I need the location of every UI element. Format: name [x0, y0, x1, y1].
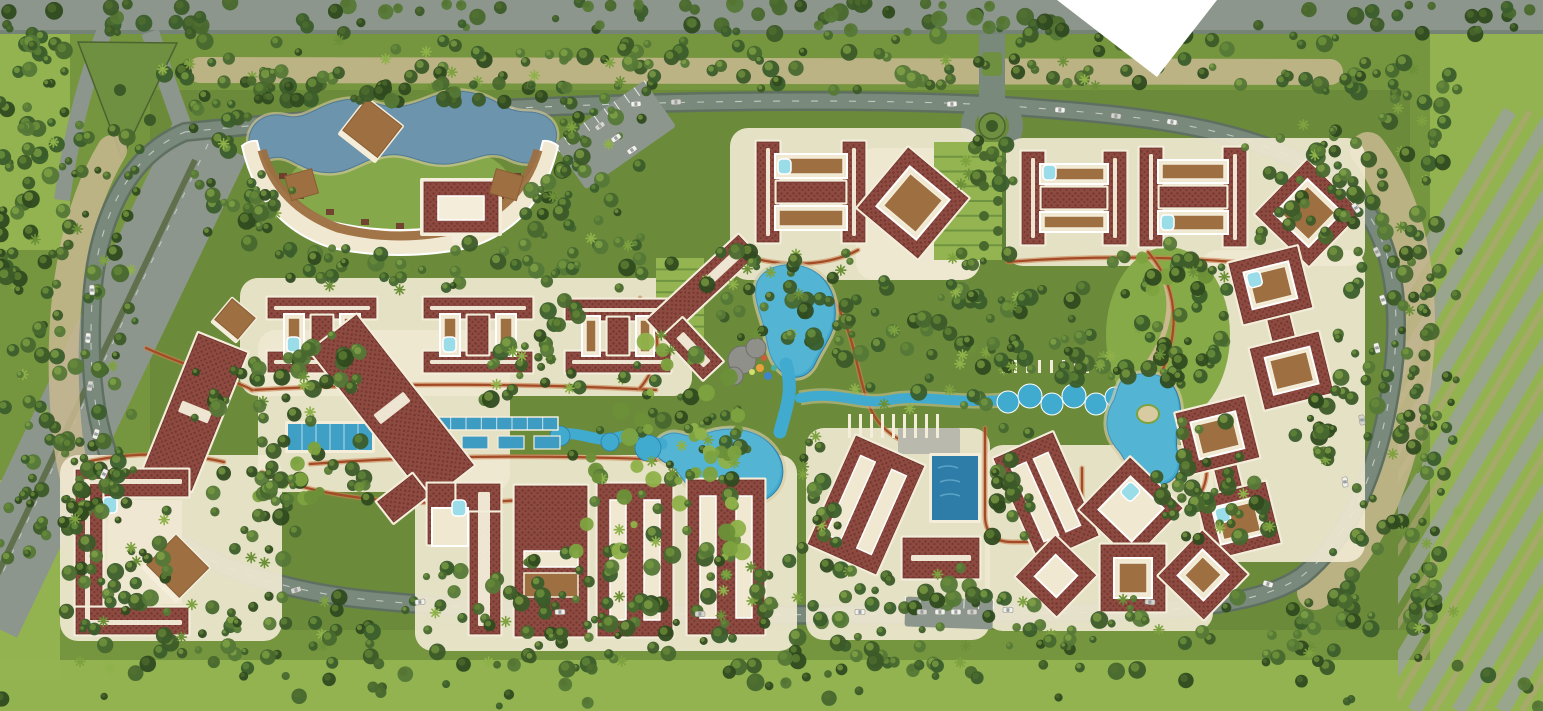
tree-highlight: [80, 577, 87, 584]
tree-highlight: [321, 376, 328, 383]
car-windshield: [954, 610, 957, 614]
tree-highlight: [587, 453, 592, 458]
tree-highlight: [256, 223, 260, 227]
tree-highlight: [615, 633, 619, 637]
tree-highlight: [560, 49, 567, 56]
tree-highlight: [474, 604, 480, 610]
tree-highlight: [666, 51, 674, 59]
tree-highlight: [1338, 613, 1346, 621]
tree-highlight: [1321, 228, 1326, 233]
tree-highlight: [244, 113, 249, 118]
tree-highlight: [329, 460, 335, 466]
pergola-slat: [925, 414, 928, 438]
tree-highlight: [1420, 587, 1427, 594]
car-windshield: [698, 612, 701, 616]
tree-highlight: [595, 241, 603, 249]
tree-highlight: [700, 421, 704, 425]
tree-highlight: [645, 60, 650, 65]
tree-highlight: [438, 93, 446, 101]
tree-highlight: [634, 362, 638, 366]
palm-tree: [718, 586, 728, 596]
tree-highlight: [1323, 88, 1327, 92]
tree-highlight: [274, 510, 283, 519]
tree-highlight: [1017, 38, 1022, 43]
tree-highlight: [266, 482, 273, 489]
tree-highlight: [1078, 282, 1085, 289]
tree-highlight: [837, 665, 843, 671]
tree-highlight: [164, 608, 168, 612]
palm-tree: [299, 372, 309, 382]
tree-highlight: [348, 481, 354, 487]
tree-highlight: [1372, 19, 1379, 26]
tree-highlight: [470, 81, 474, 85]
tree-highlight: [1126, 612, 1131, 617]
tree-highlight: [485, 620, 491, 626]
tree-highlight: [1179, 54, 1186, 61]
tree-highlight: [823, 692, 831, 700]
tree-highlight: [459, 614, 464, 619]
tree-highlight: [1220, 415, 1228, 423]
tree-highlight: [1209, 267, 1214, 272]
tree-highlight: [287, 274, 292, 279]
tree-highlight: [609, 107, 613, 111]
tree-highlight: [828, 273, 834, 279]
tree-highlight: [833, 321, 838, 326]
tree-highlight: [1228, 520, 1233, 525]
tree-highlight: [44, 168, 53, 177]
tree-highlight: [221, 199, 225, 203]
tree-highlight: [606, 561, 614, 569]
tree-highlight: [1368, 612, 1372, 616]
palm-tree: [1105, 351, 1115, 361]
tree-highlight: [637, 427, 643, 433]
pergola-slat: [1038, 360, 1041, 373]
tree-highlight: [1410, 603, 1417, 610]
tree-highlight: [1344, 698, 1348, 702]
tree-highlight: [93, 363, 101, 371]
tree-highlight: [80, 536, 89, 545]
tree-highlight: [933, 316, 941, 324]
tree-highlight: [645, 560, 654, 569]
tree-highlight: [481, 615, 486, 620]
tree-highlight: [196, 647, 200, 651]
tree-highlight: [163, 566, 169, 572]
palm-tree: [48, 137, 58, 147]
pergola-slat: [914, 414, 917, 438]
tree-highlight: [663, 647, 671, 655]
small-pool: [452, 500, 466, 516]
tree-highlight: [601, 94, 607, 100]
roof-ridge: [572, 308, 664, 312]
tree-highlight: [85, 294, 90, 299]
tree-highlight: [332, 605, 339, 612]
palm-tree: [187, 599, 197, 609]
tree-highlight: [20, 491, 25, 496]
tree-highlight: [816, 443, 821, 448]
car-windshield: [1058, 108, 1061, 112]
tree-highlight: [855, 634, 859, 638]
master-plan-image: [0, 0, 1543, 711]
tree-highlight: [1028, 365, 1033, 370]
tree-highlight: [292, 458, 299, 465]
tree-highlight: [267, 94, 271, 98]
tree-highlight: [342, 245, 347, 250]
tree-highlight: [526, 653, 532, 659]
tree-highlight: [1251, 496, 1259, 504]
tree-highlight: [452, 246, 457, 251]
tree-highlight: [375, 86, 383, 94]
tree-highlight: [1156, 489, 1165, 498]
tree-highlight: [42, 287, 48, 293]
tree-highlight: [123, 0, 128, 5]
tree-highlight: [847, 258, 851, 262]
scallop-pool: [997, 391, 1019, 413]
tree-highlight: [981, 399, 988, 406]
tree-highlight: [1039, 15, 1047, 23]
tree-highlight: [591, 497, 596, 502]
tree-highlight: [825, 671, 829, 675]
tree-highlight: [163, 507, 168, 512]
palm-tree: [30, 234, 40, 244]
tree-highlight: [915, 642, 921, 648]
tree-highlight: [649, 409, 654, 414]
tree-highlight: [605, 650, 610, 655]
tree-highlight: [442, 283, 447, 288]
tree-highlight: [1388, 292, 1396, 300]
palm-tree: [1417, 116, 1427, 126]
palm-tree: [1298, 120, 1308, 130]
tree-highlight: [268, 445, 276, 453]
tree-highlight: [992, 469, 996, 473]
tree-highlight: [82, 350, 87, 355]
tree-highlight: [947, 75, 952, 80]
tree-highlight: [310, 642, 315, 647]
tree-highlight: [1456, 248, 1460, 252]
palm-tree: [246, 553, 256, 563]
tree-highlight: [1131, 663, 1140, 672]
palm-tree: [879, 399, 889, 409]
tree-highlight: [1423, 177, 1428, 182]
tree-highlight: [1424, 285, 1431, 292]
bldg-h-tr2: [1138, 146, 1249, 249]
tree-highlight: [1308, 416, 1312, 420]
tree-highlight: [667, 461, 671, 465]
tree-highlight: [293, 690, 301, 698]
palm-tree: [955, 658, 965, 668]
tree-highlight: [1284, 72, 1289, 77]
tree-highlight: [324, 674, 331, 681]
tree-highlight: [22, 456, 27, 461]
tree-highlight: [224, 54, 230, 60]
tree-highlight: [1301, 611, 1309, 619]
pergola-slat: [936, 414, 939, 438]
court-pool: [778, 159, 791, 174]
tree-highlight: [386, 94, 394, 102]
car-windshield: [558, 610, 561, 614]
tree-highlight: [268, 85, 272, 89]
tree-highlight: [1065, 634, 1072, 641]
tree-highlight: [122, 498, 128, 504]
tree-highlight: [574, 112, 580, 118]
tree-highlight: [1025, 494, 1030, 499]
tree-highlight: [261, 190, 267, 196]
tree-highlight: [228, 609, 232, 613]
tree-highlight: [1185, 338, 1189, 342]
tree-highlight: [292, 94, 299, 101]
tree-highlight: [1378, 169, 1383, 174]
tree-highlight: [253, 362, 261, 370]
tree-highlight: [1008, 511, 1014, 517]
tree-highlight: [488, 361, 493, 366]
tree-highlight: [999, 297, 1003, 301]
tree-highlight: [701, 544, 709, 552]
tree-highlight: [131, 578, 137, 584]
tree-highlight: [1406, 2, 1410, 6]
tree-highlight: [48, 119, 52, 123]
car: [1055, 107, 1065, 113]
tree-highlight: [616, 284, 621, 289]
palm-tree: [548, 191, 558, 201]
tree-highlight: [833, 349, 838, 354]
tree-highlight: [25, 226, 33, 234]
palm-tree: [72, 224, 82, 234]
tree-highlight: [766, 682, 770, 686]
tree-highlight: [195, 12, 201, 18]
tree-highlight: [318, 72, 324, 78]
tree-highlight: [51, 350, 59, 358]
tree-highlight: [1095, 34, 1100, 39]
tree-highlight: [818, 508, 825, 515]
tree-highlight: [535, 331, 541, 337]
car-windshield: [1170, 120, 1174, 124]
tree-highlight: [1329, 247, 1337, 255]
tree-highlight: [196, 181, 201, 186]
tree-highlight: [1439, 468, 1446, 475]
tree-highlight: [127, 410, 133, 416]
tree-highlight: [1223, 604, 1228, 609]
tree-highlight: [1095, 46, 1101, 52]
tree-highlight: [1345, 283, 1354, 292]
palm-tree: [811, 431, 821, 441]
tree-highlight: [968, 291, 974, 297]
roof-link: [1042, 188, 1106, 208]
tree-highlight: [522, 343, 526, 347]
tree-highlight: [919, 585, 928, 594]
court-deck: [1162, 164, 1224, 179]
tree-highlight: [354, 347, 361, 354]
tree-highlight: [582, 138, 588, 144]
tree-highlight: [1302, 6, 1307, 11]
tree-highlight: [1161, 270, 1169, 278]
tree-highlight: [1314, 78, 1323, 87]
tree-highlight: [122, 607, 127, 612]
tree-highlight: [759, 327, 764, 332]
palm-tree: [98, 616, 108, 626]
tree-highlight: [1438, 82, 1445, 89]
tree-highlight: [647, 473, 655, 481]
roof-ridge: [1113, 158, 1117, 238]
tree-highlight: [338, 351, 347, 360]
tree-highlight: [1384, 245, 1388, 249]
tree-highlight: [621, 621, 629, 629]
tree-highlight: [708, 66, 714, 72]
tree-highlight: [1383, 370, 1390, 377]
tree-highlight: [685, 425, 690, 430]
tree-highlight: [720, 525, 729, 534]
tree-highlight: [988, 338, 995, 345]
tree-highlight: [717, 248, 723, 254]
tree-highlight: [1254, 21, 1259, 26]
tree-highlight: [509, 659, 516, 666]
tree-highlight: [328, 658, 334, 664]
planter: [361, 219, 369, 225]
tree-highlight: [64, 567, 72, 575]
tree-highlight: [1297, 177, 1301, 181]
tree-highlight: [1186, 481, 1195, 490]
tree-highlight: [120, 592, 127, 599]
tree-highlight: [1215, 332, 1223, 340]
pergola-slat: [881, 414, 884, 438]
tree-highlight: [722, 293, 729, 300]
tree-highlight: [676, 412, 683, 419]
tree-highlight: [192, 415, 196, 419]
tree-highlight: [95, 505, 103, 513]
tree-highlight: [76, 563, 83, 570]
tree-highlight: [875, 49, 881, 55]
tree-highlight: [1288, 640, 1294, 646]
tree-highlight: [618, 491, 626, 499]
tree-highlight: [977, 360, 985, 368]
tree-highlight: [834, 613, 842, 621]
tree-highlight: [72, 171, 76, 175]
tree-highlight: [666, 258, 673, 265]
water-play-feature: [756, 364, 764, 372]
tree-highlight: [635, 0, 640, 5]
tree-highlight: [1356, 72, 1361, 77]
tree-highlight: [582, 519, 589, 526]
tree-highlight: [841, 300, 848, 307]
palm-tree: [656, 330, 666, 340]
car: [85, 333, 91, 343]
tree-highlight: [58, 205, 65, 212]
tree-highlight: [44, 80, 48, 84]
tree-highlight: [1264, 167, 1271, 174]
tree-highlight: [380, 6, 388, 14]
tree-highlight: [1153, 322, 1159, 328]
palm-tree: [651, 537, 661, 547]
tree-highlight: [715, 557, 721, 563]
tree-highlight: [1391, 95, 1396, 100]
tree-highlight: [352, 375, 358, 381]
tree-highlight: [277, 552, 285, 560]
tree-highlight: [1152, 471, 1159, 478]
tree-highlight: [815, 21, 820, 26]
tree-highlight: [281, 618, 287, 624]
tree-highlight: [91, 551, 98, 558]
tree-highlight: [285, 243, 292, 250]
tree-highlight: [207, 179, 212, 184]
tree-highlight: [1379, 114, 1384, 119]
court-pool: [1161, 215, 1174, 230]
tree-highlight: [1399, 425, 1404, 430]
tree-highlight: [365, 650, 373, 658]
palm-tree: [836, 265, 846, 275]
tree-highlight: [873, 339, 880, 346]
tree-highlight: [559, 295, 566, 302]
tree-highlight: [680, 38, 685, 43]
tree-highlight: [1197, 626, 1204, 633]
tree-highlight: [758, 85, 762, 89]
alley-tree: [993, 166, 1003, 176]
tree-highlight: [1378, 521, 1386, 529]
car: [671, 99, 681, 105]
roof-ridge: [572, 360, 664, 364]
tree-highlight: [615, 209, 619, 213]
tree-highlight: [1110, 664, 1119, 673]
tree-highlight: [1060, 362, 1066, 368]
tree-highlight: [825, 9, 833, 17]
tree-highlight: [704, 417, 708, 421]
tree-highlight: [798, 543, 804, 549]
tree-highlight: [1351, 138, 1357, 144]
tree-highlight: [520, 240, 527, 247]
tree-highlight: [1039, 286, 1044, 291]
tree-highlight: [542, 193, 548, 199]
tree-highlight: [722, 27, 728, 33]
tree-highlight: [211, 508, 216, 513]
tree-highlight: [16, 497, 20, 501]
tree-highlight: [822, 560, 829, 567]
tree-highlight: [917, 312, 926, 321]
tree-highlight: [1401, 222, 1405, 226]
tree-highlight: [533, 578, 540, 585]
tree-highlight: [937, 80, 942, 85]
tree-highlight: [1362, 376, 1367, 381]
tree-highlight: [1435, 99, 1443, 107]
tree-highlight: [536, 589, 545, 598]
tree-highlight: [1114, 368, 1118, 372]
tree-highlight: [738, 70, 745, 77]
tree-highlight: [1423, 157, 1431, 165]
tree-highlight: [529, 82, 533, 86]
basin: [534, 436, 560, 449]
tree-highlight: [721, 411, 726, 416]
car-windshield: [88, 384, 92, 388]
tree-highlight: [1066, 294, 1075, 303]
tree-highlight: [451, 283, 455, 287]
tree-highlight: [1075, 332, 1082, 339]
palm-tree: [334, 35, 344, 45]
tree-highlight: [357, 625, 362, 630]
palm-tree: [1219, 272, 1229, 282]
tree-highlight: [1036, 620, 1042, 626]
tree-highlight: [357, 19, 362, 24]
tree-highlight: [1224, 469, 1230, 475]
tree-highlight: [1377, 214, 1384, 221]
car-windshield: [1360, 418, 1364, 422]
tree-highlight: [592, 617, 596, 621]
tree-highlight: [7, 26, 11, 30]
car: [947, 101, 957, 107]
tree-highlight: [1203, 493, 1210, 500]
tree-highlight: [972, 171, 980, 179]
palm-tree: [955, 359, 965, 369]
tree-highlight: [1136, 317, 1144, 325]
tree-highlight: [241, 77, 247, 83]
tree-highlight: [1219, 264, 1223, 268]
tree-highlight: [449, 586, 456, 593]
tree-highlight: [915, 661, 920, 666]
